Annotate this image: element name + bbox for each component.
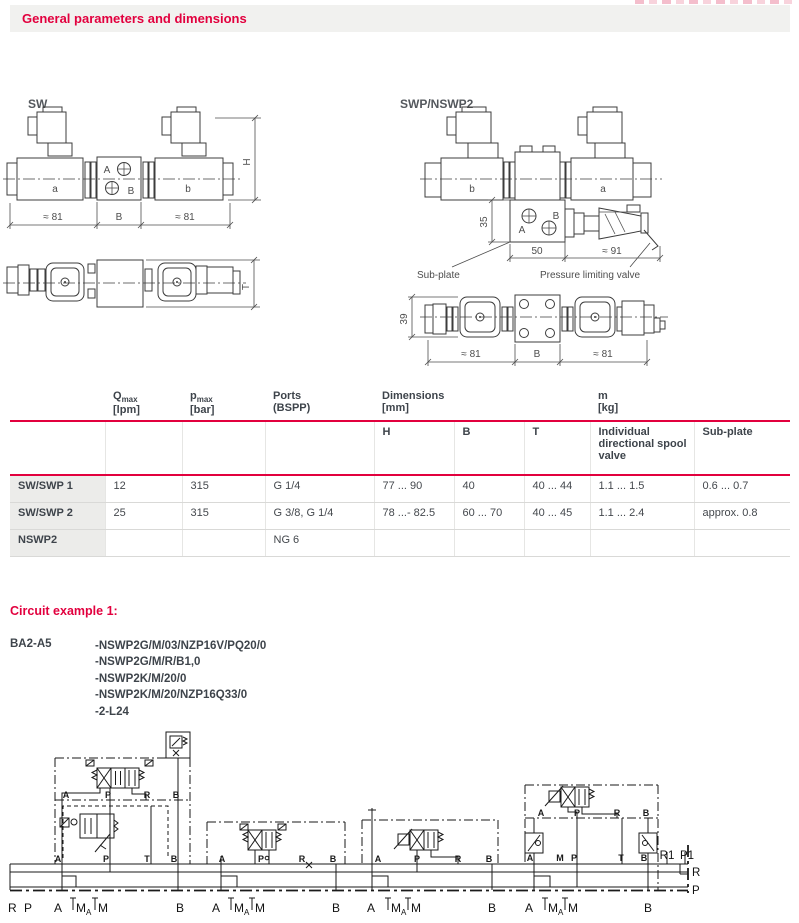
swp-dim-81-left: ≈ 81 xyxy=(461,349,481,360)
rail-label: B xyxy=(644,901,652,915)
port-label: P xyxy=(103,854,109,864)
table-cell: NG 6 xyxy=(265,530,374,557)
swp-coil-b-label: b xyxy=(469,184,475,195)
swp-coil-a-label: a xyxy=(600,184,606,195)
rail-label: P xyxy=(24,901,32,915)
port-label: P xyxy=(574,808,580,818)
table-cell: 1.1 ... 2.4 xyxy=(590,503,694,530)
section-header: General parameters and dimensions xyxy=(10,5,790,32)
circuit-example-title: Circuit example 1: xyxy=(10,604,118,618)
swp-port-b-label: B xyxy=(553,211,560,222)
table-cell: SW/SWP 2 xyxy=(10,503,105,530)
table-cell xyxy=(524,530,590,557)
table-cell: 12 xyxy=(105,475,182,503)
sw-dim-t: T xyxy=(241,284,252,290)
table-cell: SW/SWP 1 xyxy=(10,475,105,503)
circuit-item: -NSWP2K/M/20/0 xyxy=(95,671,266,687)
port-label: R xyxy=(144,790,151,800)
table-cell: 25 xyxy=(105,503,182,530)
table-cell: 77 ... 90 xyxy=(374,475,454,503)
subheader-subplate: Sub-plate xyxy=(694,421,790,475)
rail-label: M xyxy=(548,901,558,915)
swp-dim-50: 50 xyxy=(531,246,543,257)
swp-side-view: SWP/NSWP2 b a A B 35 xyxy=(400,97,663,281)
rail-label: M xyxy=(98,901,108,915)
table-cell xyxy=(374,530,454,557)
sw-port-a-label: A xyxy=(104,165,111,176)
port-label: R xyxy=(455,854,462,864)
subheader-empty xyxy=(10,421,105,475)
swp-port-a-label: A xyxy=(519,225,526,236)
table-cell: 315 xyxy=(182,475,265,503)
sw-top-view: T xyxy=(3,257,260,310)
rail-label: A xyxy=(212,901,220,915)
rail-label: M xyxy=(568,901,578,915)
swp-dim-91: ≈ 91 xyxy=(602,246,622,257)
valve-station-1: A P R B A P T B xyxy=(55,732,190,890)
sw-dim-81-left: ≈ 81 xyxy=(43,212,63,223)
table-cell xyxy=(590,530,694,557)
subheader-t: T xyxy=(524,421,590,475)
valve-station-4: A P R B A M P T B R1 P1 R P xyxy=(525,785,700,897)
table-row: SW/SWP 1 12 315 G 1/4 77 ... 90 40 40 ..… xyxy=(10,475,790,503)
port-label-r1: R1 xyxy=(660,850,675,862)
table-cell xyxy=(694,530,790,557)
port-label: B xyxy=(171,854,178,864)
port-label: B xyxy=(643,808,650,818)
rail-label: B xyxy=(332,901,340,915)
sw-title: SW xyxy=(28,97,48,111)
rail-label: A xyxy=(367,901,375,915)
rail-label: M xyxy=(411,901,421,915)
header-dimensions: Dimensions[mm] xyxy=(374,386,590,421)
port-label: A xyxy=(55,854,62,864)
rail-label: R xyxy=(8,901,17,915)
rail-label: B xyxy=(488,901,496,915)
port-label: P xyxy=(414,854,420,864)
port-label-r-out: R xyxy=(692,867,700,879)
subheader-h: H xyxy=(374,421,454,475)
sw-port-b-label: B xyxy=(128,186,135,197)
dimension-drawings: SW a b A B H xyxy=(0,90,799,380)
rail-label-sub: A xyxy=(244,908,250,917)
table-cell: G 1/4 xyxy=(265,475,374,503)
port-label: A xyxy=(219,854,226,864)
table-cell xyxy=(182,530,265,557)
rail-label: A xyxy=(525,901,533,915)
swp-subplate-caption: Sub-plate xyxy=(417,270,460,281)
valve-station-2: A P R B xyxy=(207,822,345,890)
rail-port-labels: R P A M A M B A M A M B A M A M B A M A … xyxy=(8,901,652,917)
header-ports: Ports(BSPP) xyxy=(265,386,374,421)
rail-label-sub: A xyxy=(401,908,407,917)
circuit-item: -NSWP2K/M/20/NZP16Q33/0 xyxy=(95,687,266,703)
table-cell: 78 ...- 82.5 xyxy=(374,503,454,530)
header-pmax: pmax[bar] xyxy=(182,386,265,421)
table-cell: 315 xyxy=(182,503,265,530)
sw-coil-a-label: a xyxy=(52,184,58,195)
swp-plv-caption: Pressure limiting valve xyxy=(540,270,640,281)
subheader-empty xyxy=(105,421,182,475)
port-label: B xyxy=(641,853,648,863)
hydraulic-circuit-diagram: A P R B A P T B A xyxy=(0,725,799,923)
port-label: P xyxy=(571,853,577,863)
port-label: A xyxy=(63,790,70,800)
manifold-rail xyxy=(10,845,688,893)
table-cell: 40 ... 45 xyxy=(524,503,590,530)
header-qmax: Qmax[lpm] xyxy=(105,386,182,421)
cropped-header-marks xyxy=(635,0,793,4)
swp-bottom-view: 39 ≈ 81 B ≈ 81 xyxy=(399,294,668,366)
table-row: NSWP2 NG 6 xyxy=(10,530,790,557)
sw-dim-h: H xyxy=(242,158,253,165)
rail-label: A xyxy=(54,901,62,915)
rail-label: B xyxy=(176,901,184,915)
swp-dim-35: 35 xyxy=(479,216,490,228)
table-cell: G 3/8, G 1/4 xyxy=(265,503,374,530)
circuit-item: -NSWP2G/M/R/B1,0 xyxy=(95,654,266,670)
sw-dim-81-right: ≈ 81 xyxy=(175,212,195,223)
table-cell xyxy=(454,530,524,557)
rail-label-sub: A xyxy=(558,908,564,917)
header-mass: m[kg] xyxy=(590,386,790,421)
subheader-empty xyxy=(182,421,265,475)
table-cell: 40 ... 44 xyxy=(524,475,590,503)
circuit-model: BA2-A5 xyxy=(10,638,52,650)
circuit-item-list: -NSWP2G/M/03/NZP16V/PQ20/0 -NSWP2G/M/R/B… xyxy=(95,638,266,720)
subheader-empty xyxy=(265,421,374,475)
table-row: SW/SWP 2 25 315 G 3/8, G 1/4 78 ...- 82.… xyxy=(10,503,790,530)
circuit-item: -NSWP2G/M/03/NZP16V/PQ20/0 xyxy=(95,638,266,654)
port-label: A xyxy=(527,853,534,863)
sw-coil-b-label: b xyxy=(185,184,191,195)
circuit-item: -2-L24 xyxy=(95,704,266,720)
port-label: B xyxy=(330,854,337,864)
rail-label: M xyxy=(76,901,86,915)
rail-label-sub: A xyxy=(86,908,92,917)
port-label: T xyxy=(144,854,150,864)
swp-dim-81-right: ≈ 81 xyxy=(593,349,613,360)
swp-title: SWP/NSWP2 xyxy=(400,97,474,111)
subheader-b: B xyxy=(454,421,524,475)
table-cell: approx. 0.8 xyxy=(694,503,790,530)
section-title: General parameters and dimensions xyxy=(10,5,790,32)
rail-label: M xyxy=(255,901,265,915)
valve-station-3: A P R B xyxy=(362,808,498,890)
port-label: R xyxy=(614,808,621,818)
swp-dim-39: 39 xyxy=(399,313,410,325)
rail-label: M xyxy=(391,901,401,915)
sw-dim-b: B xyxy=(116,212,123,223)
page: General parameters and dimensions SW a b… xyxy=(0,0,799,923)
port-label: B xyxy=(486,854,493,864)
parameters-table: Qmax[lpm] pmax[bar] Ports(BSPP) Dimensio… xyxy=(10,386,790,557)
table-header-row-1: Qmax[lpm] pmax[bar] Ports(BSPP) Dimensio… xyxy=(10,386,790,421)
header-empty xyxy=(10,386,105,421)
port-label: P xyxy=(105,790,111,800)
subheader-valve: Individual directional spool valve xyxy=(590,421,694,475)
table-cell xyxy=(105,530,182,557)
port-label-p-out: P xyxy=(692,885,700,897)
port-label: A xyxy=(538,808,545,818)
port-label: R xyxy=(299,854,306,864)
table-cell: 40 xyxy=(454,475,524,503)
rail-label: M xyxy=(234,901,244,915)
table-cell: 1.1 ... 1.5 xyxy=(590,475,694,503)
table-header-row-2: H B T Individual directional spool valve… xyxy=(10,421,790,475)
port-label: M xyxy=(556,853,564,863)
port-label: T xyxy=(618,853,624,863)
port-label: A xyxy=(375,854,382,864)
table-cell: 0.6 ... 0.7 xyxy=(694,475,790,503)
sw-side-view: SW a b A B H xyxy=(3,97,261,229)
table-cell: 60 ... 70 xyxy=(454,503,524,530)
table-cell: NSWP2 xyxy=(10,530,105,557)
port-label: B xyxy=(173,790,180,800)
port-label-p1: P1 xyxy=(680,850,694,862)
port-label: P xyxy=(258,854,264,864)
swp-dim-b: B xyxy=(534,349,541,360)
